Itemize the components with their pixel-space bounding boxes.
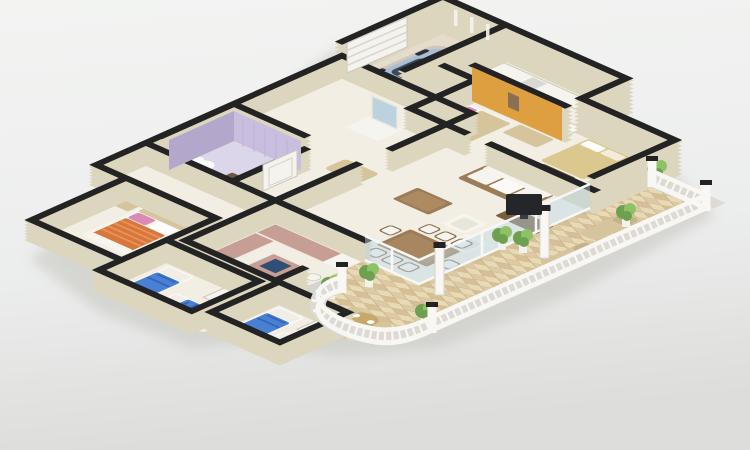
floorplan-render xyxy=(0,0,750,450)
floorplan-svg xyxy=(0,0,750,450)
